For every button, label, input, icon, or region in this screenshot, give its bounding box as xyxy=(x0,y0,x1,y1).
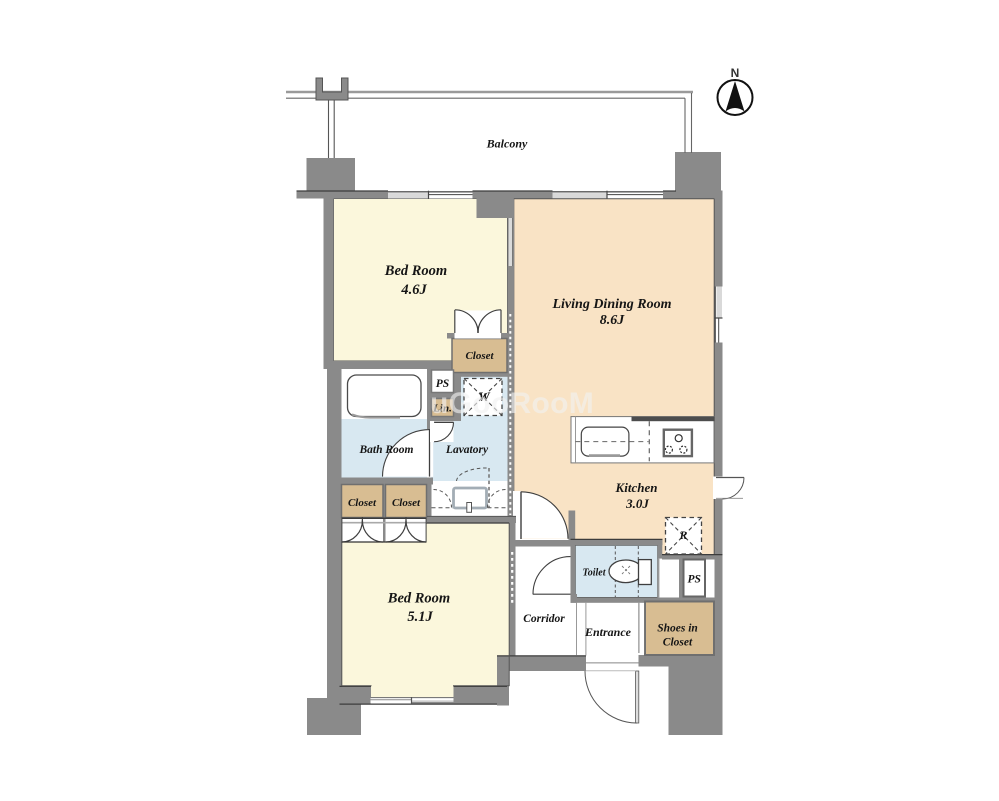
svg-text:5.1J: 5.1J xyxy=(407,609,433,625)
svg-text:Closet: Closet xyxy=(465,350,494,362)
svg-text:Entrance: Entrance xyxy=(584,625,632,639)
svg-text:Bed Room: Bed Room xyxy=(384,263,447,279)
svg-text:Closet: Closet xyxy=(348,497,377,509)
svg-text:Balcony: Balcony xyxy=(486,136,528,150)
svg-text:Toilet: Toilet xyxy=(583,567,607,578)
svg-text:8.6J: 8.6J xyxy=(600,313,626,328)
svg-text:4.6J: 4.6J xyxy=(400,282,427,298)
svg-text:Bath Room: Bath Room xyxy=(358,444,413,456)
svg-text:Closet: Closet xyxy=(663,637,693,649)
svg-text:Living Dining Room: Living Dining Room xyxy=(551,297,671,312)
svg-text:Bed Room: Bed Room xyxy=(387,591,450,607)
svg-text:Corridor: Corridor xyxy=(523,613,565,625)
svg-text:R: R xyxy=(679,530,688,542)
svg-text:Closet: Closet xyxy=(392,497,421,509)
svg-text:N: N xyxy=(731,66,740,80)
svg-text:PS: PS xyxy=(687,574,700,586)
svg-text:3.0J: 3.0J xyxy=(625,496,649,511)
svg-text:Kitchen: Kitchen xyxy=(615,480,658,495)
svg-text:Shoes in: Shoes in xyxy=(657,623,698,635)
svg-text:Lavatory: Lavatory xyxy=(445,444,489,456)
svg-text:uGooRooM: uGooRooM xyxy=(430,387,594,420)
